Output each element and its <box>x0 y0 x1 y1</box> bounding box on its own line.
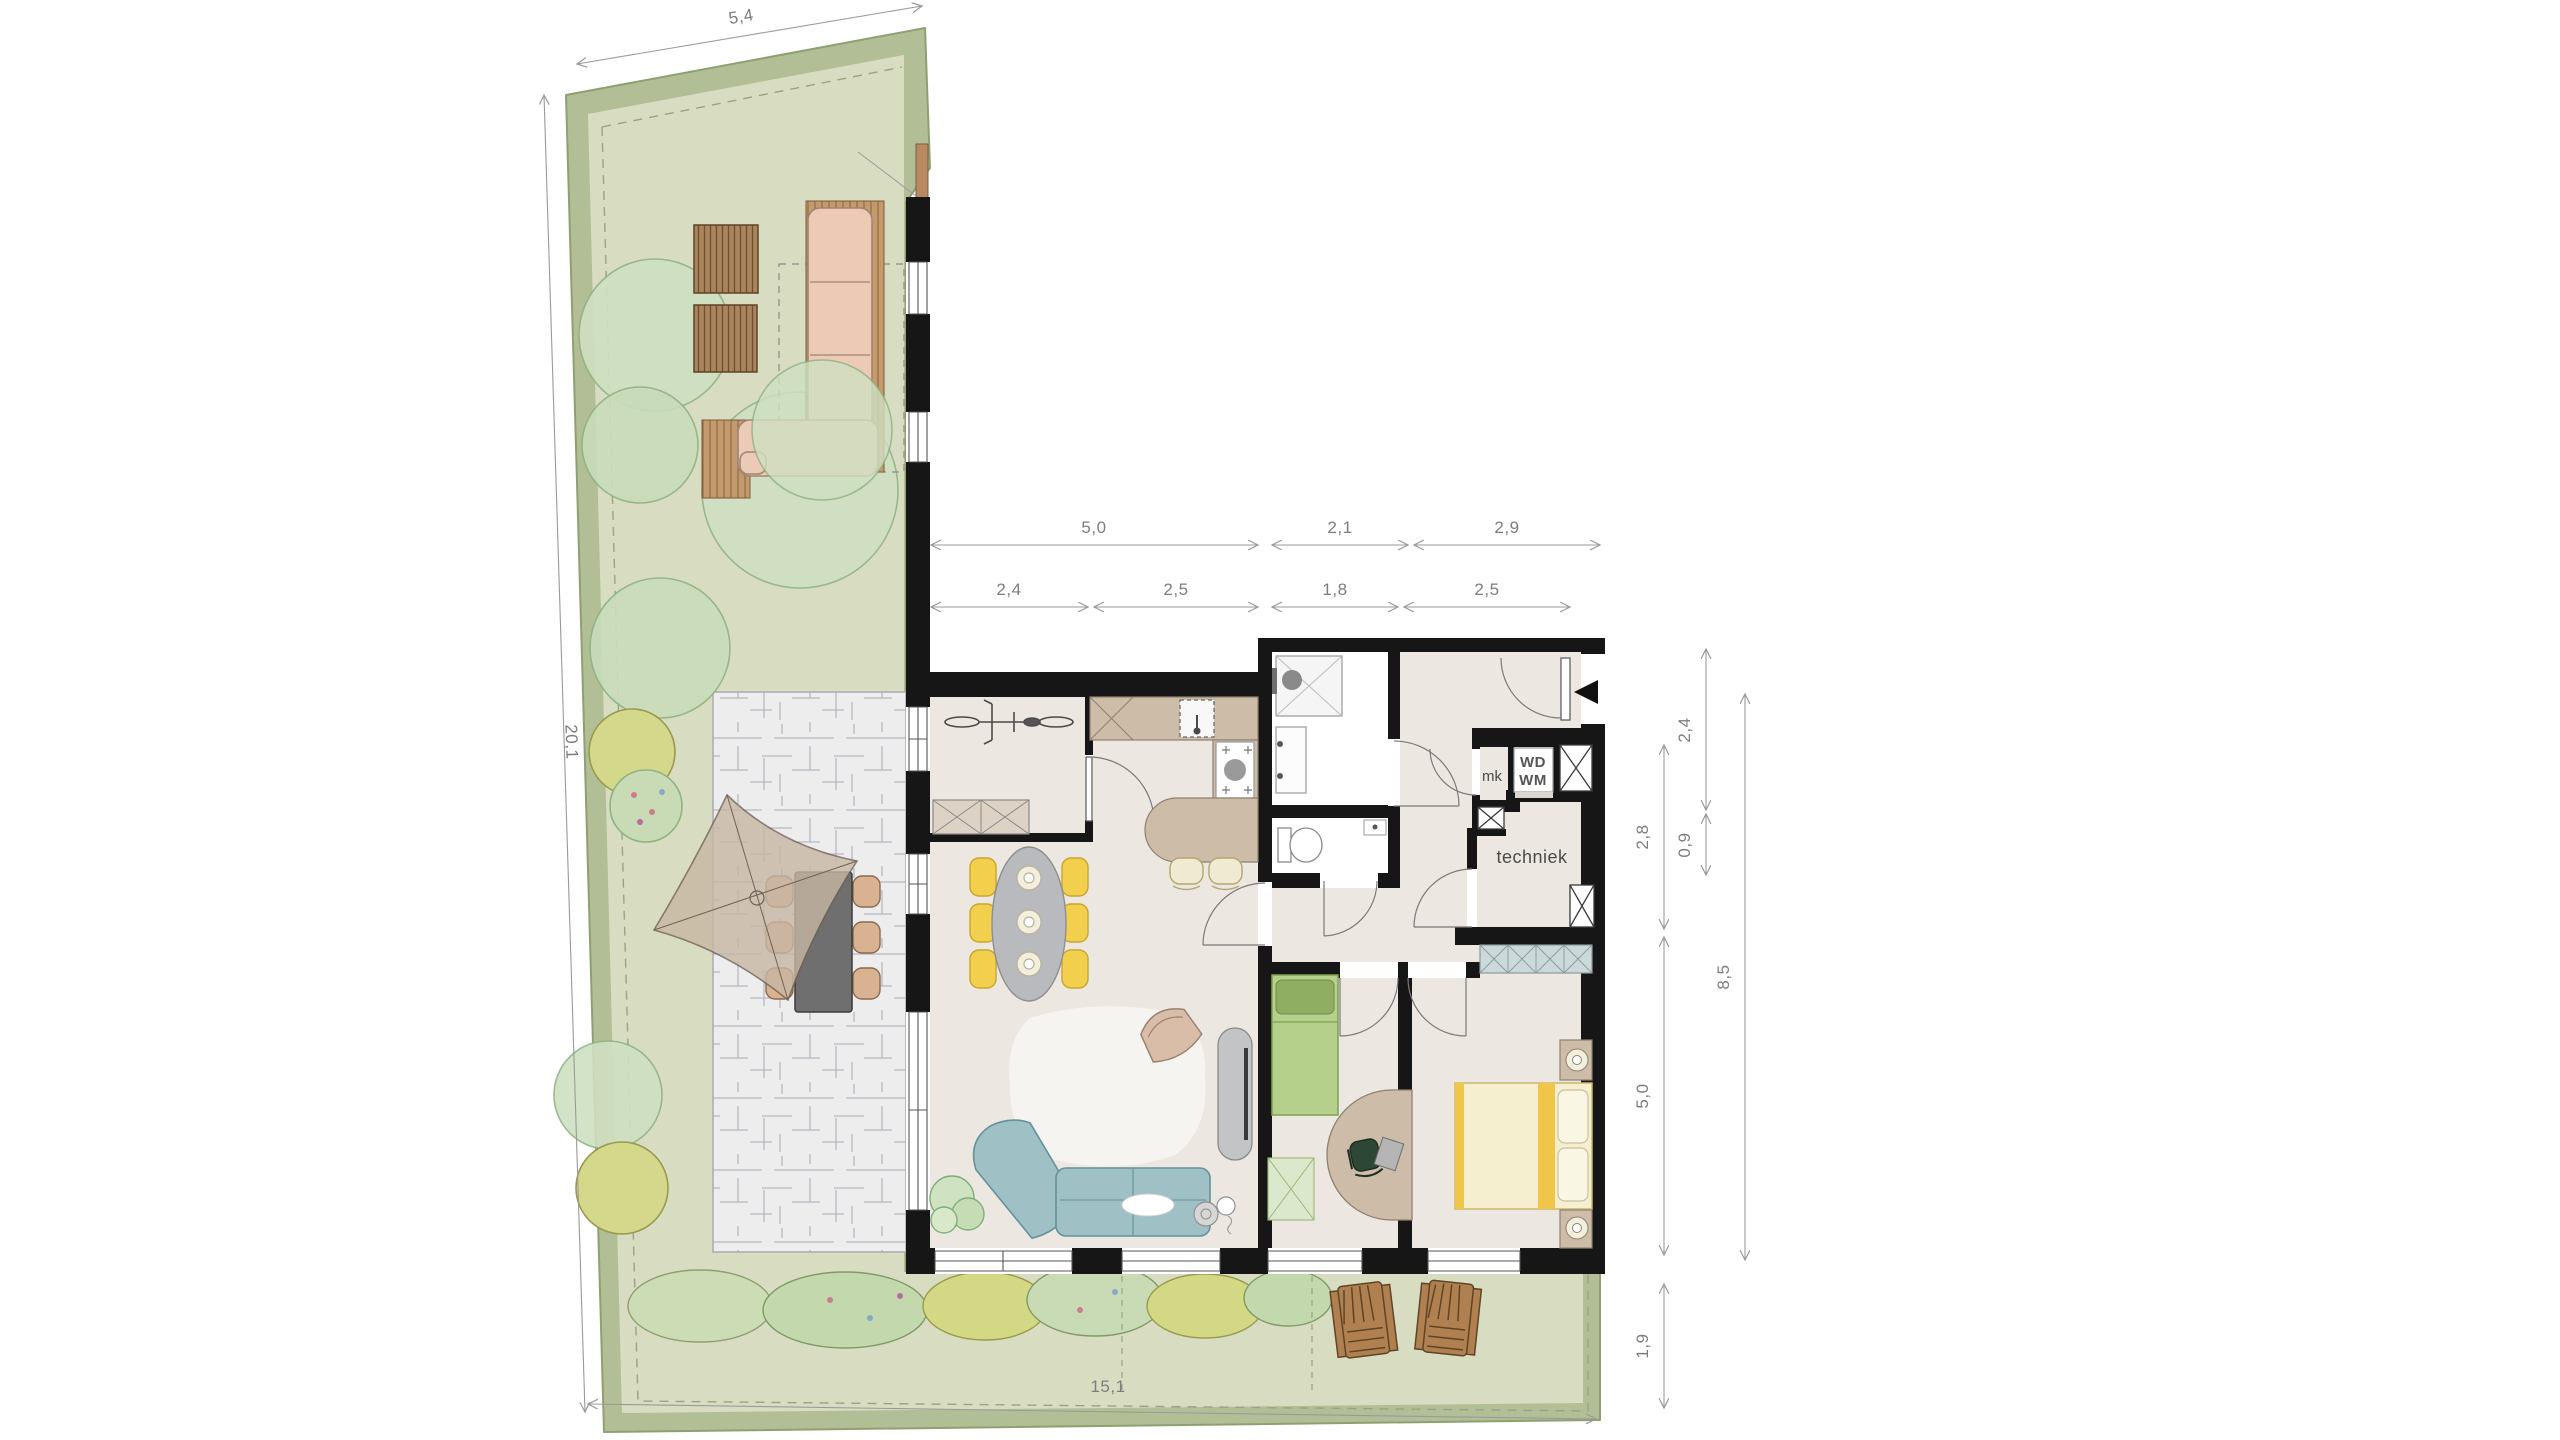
kitchen-sink <box>1180 700 1214 737</box>
toilet <box>1278 828 1322 862</box>
wm-label: WM <box>1519 772 1547 789</box>
closet <box>1480 945 1592 973</box>
pergola-post-icon <box>916 144 928 204</box>
dim-label: 2,9 <box>1494 518 1519 537</box>
sofa-pillow <box>1122 1194 1174 1216</box>
dim-label: 15,1 <box>1090 1377 1125 1396</box>
dim-label: 2,5 <box>1474 580 1499 599</box>
building: WD WM mk techniek <box>906 197 1605 1274</box>
coffee-table-icon <box>694 225 758 293</box>
dim-label: 0,9 <box>1675 832 1694 857</box>
dim-label: 2,1 <box>1327 518 1352 537</box>
mk-label: mk <box>1482 768 1502 785</box>
dim-label: 2,8 <box>1633 824 1652 849</box>
tv-sideboard <box>1218 1028 1252 1160</box>
bush-icon <box>576 1142 668 1234</box>
tree-icon <box>590 578 730 718</box>
dim-label: 1,8 <box>1322 580 1347 599</box>
dim-label: 2,4 <box>996 580 1021 599</box>
master-bed <box>1455 1083 1592 1209</box>
shower-head-icon <box>1282 670 1302 690</box>
washer-dryer: WD WM <box>1514 748 1553 798</box>
kitchen-counter <box>1090 697 1258 740</box>
floor-plan-canvas: WD WM mk techniek <box>0 0 2560 1440</box>
dim-label: 20,1 <box>561 724 581 760</box>
coffee-table-icon <box>694 305 757 372</box>
wd-label: WD <box>1520 754 1546 771</box>
dim-label: 1,9 <box>1633 1333 1652 1358</box>
cooktop <box>1216 742 1254 798</box>
dim-label: 5,0 <box>1633 1083 1652 1108</box>
nightstand <box>1560 1210 1592 1248</box>
dim-label: 2,4 <box>1675 717 1694 742</box>
dim-label: 5,4 <box>727 5 755 28</box>
techniek-label: techniek <box>1496 847 1568 867</box>
table-candles <box>1017 866 1041 976</box>
tree-icon <box>554 1041 662 1149</box>
dim-label: 5,0 <box>1081 518 1106 537</box>
dining-area <box>970 847 1088 1001</box>
dim-label: 8,5 <box>1714 964 1733 989</box>
nightstand <box>1560 1040 1592 1080</box>
tree-icon <box>752 360 892 500</box>
tree-icon <box>582 387 698 503</box>
tv-icon <box>1244 1048 1248 1140</box>
kitchen-island <box>1145 798 1258 862</box>
kids-bed <box>1272 975 1338 1115</box>
floor-plan-page: WD WM mk techniek <box>0 0 2560 1440</box>
flower-bush-icon <box>610 770 682 842</box>
south-shrubs <box>628 1264 1332 1348</box>
washbasin <box>1276 727 1306 793</box>
dim-label: 2,5 <box>1163 580 1188 599</box>
